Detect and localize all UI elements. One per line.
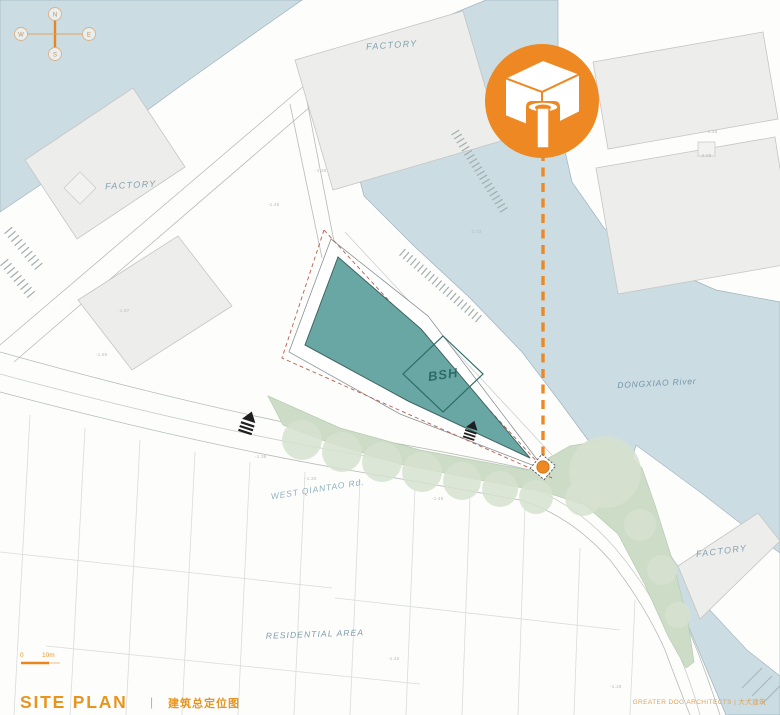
spot-elevation: -1.67	[118, 308, 130, 313]
site-plan-svg: BSH -1.35 -1.48 -1.67 -1.50 -1.73 -1.48 …	[0, 0, 780, 715]
drawing-title: SITE PLAN	[20, 692, 128, 712]
compass-w: W	[18, 33, 24, 39]
parking-comb	[8, 230, 40, 268]
residential-label: RESIDENTIAL AREA	[266, 627, 365, 640]
spot-elevation: -2.08	[700, 153, 712, 158]
spot-elevation: -1.73	[470, 229, 482, 234]
compass-e: E	[87, 33, 91, 39]
scale-start: 0	[20, 652, 24, 659]
title-separator: |	[150, 695, 153, 709]
title-block: SITE PLAN | 建筑总定位图 GREATER DOG ARCHITECT…	[20, 692, 766, 712]
spot-elevation: -1.30	[305, 476, 317, 481]
spot-elevation: -1.18	[610, 684, 622, 689]
spot-elevation: -1.48	[706, 129, 718, 134]
spot-elevation: -1.48	[268, 202, 280, 207]
building-badge	[485, 44, 599, 158]
scale-end: 10m	[42, 652, 55, 659]
spot-elevation: -1.35	[315, 168, 327, 173]
spot-elevation: -1.45	[432, 496, 444, 501]
scale-bar: 0 10m	[20, 652, 60, 663]
drawing-subtitle-cn: 建筑总定位图	[168, 696, 240, 710]
factory-block	[78, 236, 232, 370]
spot-elevation: -1.42	[388, 656, 400, 661]
site-plan-drawing: BSH -1.35 -1.48 -1.67 -1.50 -1.73 -1.48 …	[0, 0, 780, 715]
trees	[282, 420, 691, 628]
spot-elevation: -1.50	[96, 352, 108, 357]
compass-n: N	[53, 13, 57, 19]
architect-credit: GREATER DOG ARCHITECTS | 大犬建筑	[633, 697, 767, 706]
road-label: WEST QIANTAO Rd.	[270, 477, 365, 502]
spot-elevation: -1.38	[255, 454, 267, 459]
compass-s: S	[53, 53, 57, 59]
marker-dot	[537, 461, 549, 473]
parking-comb	[4, 262, 34, 298]
